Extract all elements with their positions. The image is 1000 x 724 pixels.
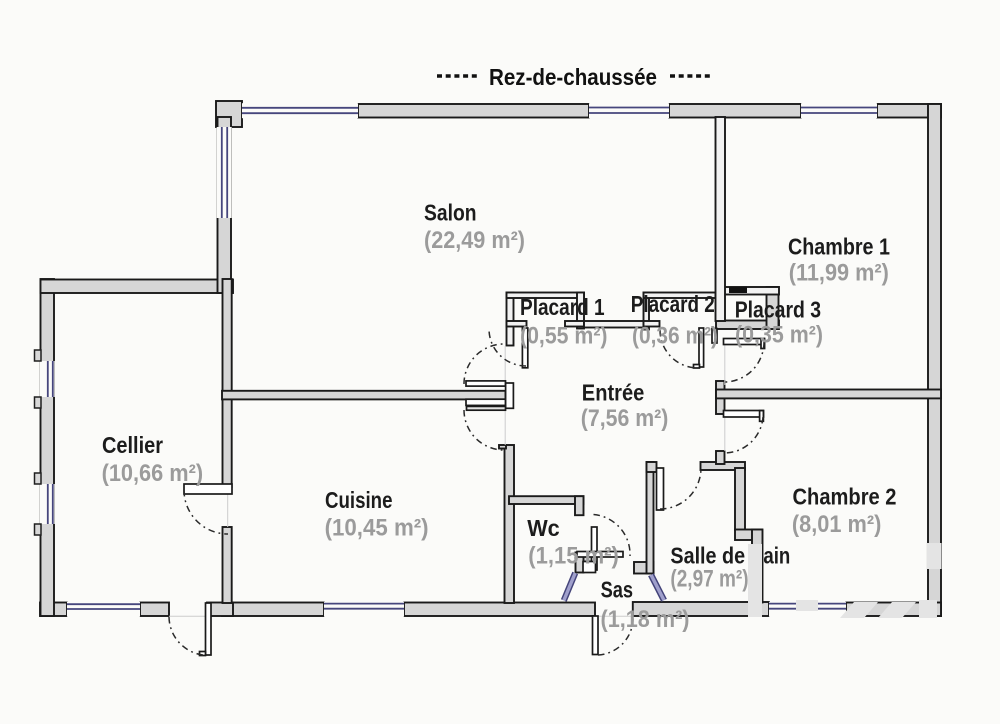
svg-text:Cellier: Cellier <box>102 432 163 458</box>
svg-text:Wc: Wc <box>527 515 560 541</box>
svg-text:Placard 1: Placard 1 <box>520 294 605 320</box>
svg-text:Sas: Sas <box>601 577 634 603</box>
svg-text:(11,99 m²): (11,99 m²) <box>789 260 889 287</box>
svg-text:(0,55 m²): (0,55 m²) <box>520 323 608 350</box>
svg-text:Chambre 1: Chambre 1 <box>788 234 890 260</box>
svg-text:(1,15 m²): (1,15 m²) <box>528 543 619 570</box>
svg-text:(10,45 m²): (10,45 m²) <box>325 515 429 542</box>
svg-text:Rez-de-chaussée: Rez-de-chaussée <box>489 64 657 90</box>
svg-text:(7,56 m²): (7,56 m²) <box>581 405 669 432</box>
svg-text:(10,66 m²): (10,66 m²) <box>102 460 204 487</box>
svg-text:Chambre 2: Chambre 2 <box>793 484 897 510</box>
svg-text:Entrée: Entrée <box>582 380 645 406</box>
svg-text:(8,01 m²): (8,01 m²) <box>792 511 882 538</box>
svg-text:Placard 3: Placard 3 <box>735 296 821 322</box>
svg-text:(2,97 m²): (2,97 m²) <box>670 566 748 593</box>
svg-text:Salon: Salon <box>424 200 477 226</box>
svg-text:Cuisine: Cuisine <box>325 487 393 513</box>
svg-text:(0,35 m²): (0,35 m²) <box>735 322 823 349</box>
svg-text:(1,18 m²): (1,18 m²) <box>601 606 690 633</box>
svg-text:(22,49 m²): (22,49 m²) <box>424 227 525 254</box>
svg-text:Placard 2: Placard 2 <box>631 291 715 317</box>
svg-text:(0,36 m²): (0,36 m²) <box>632 323 718 350</box>
